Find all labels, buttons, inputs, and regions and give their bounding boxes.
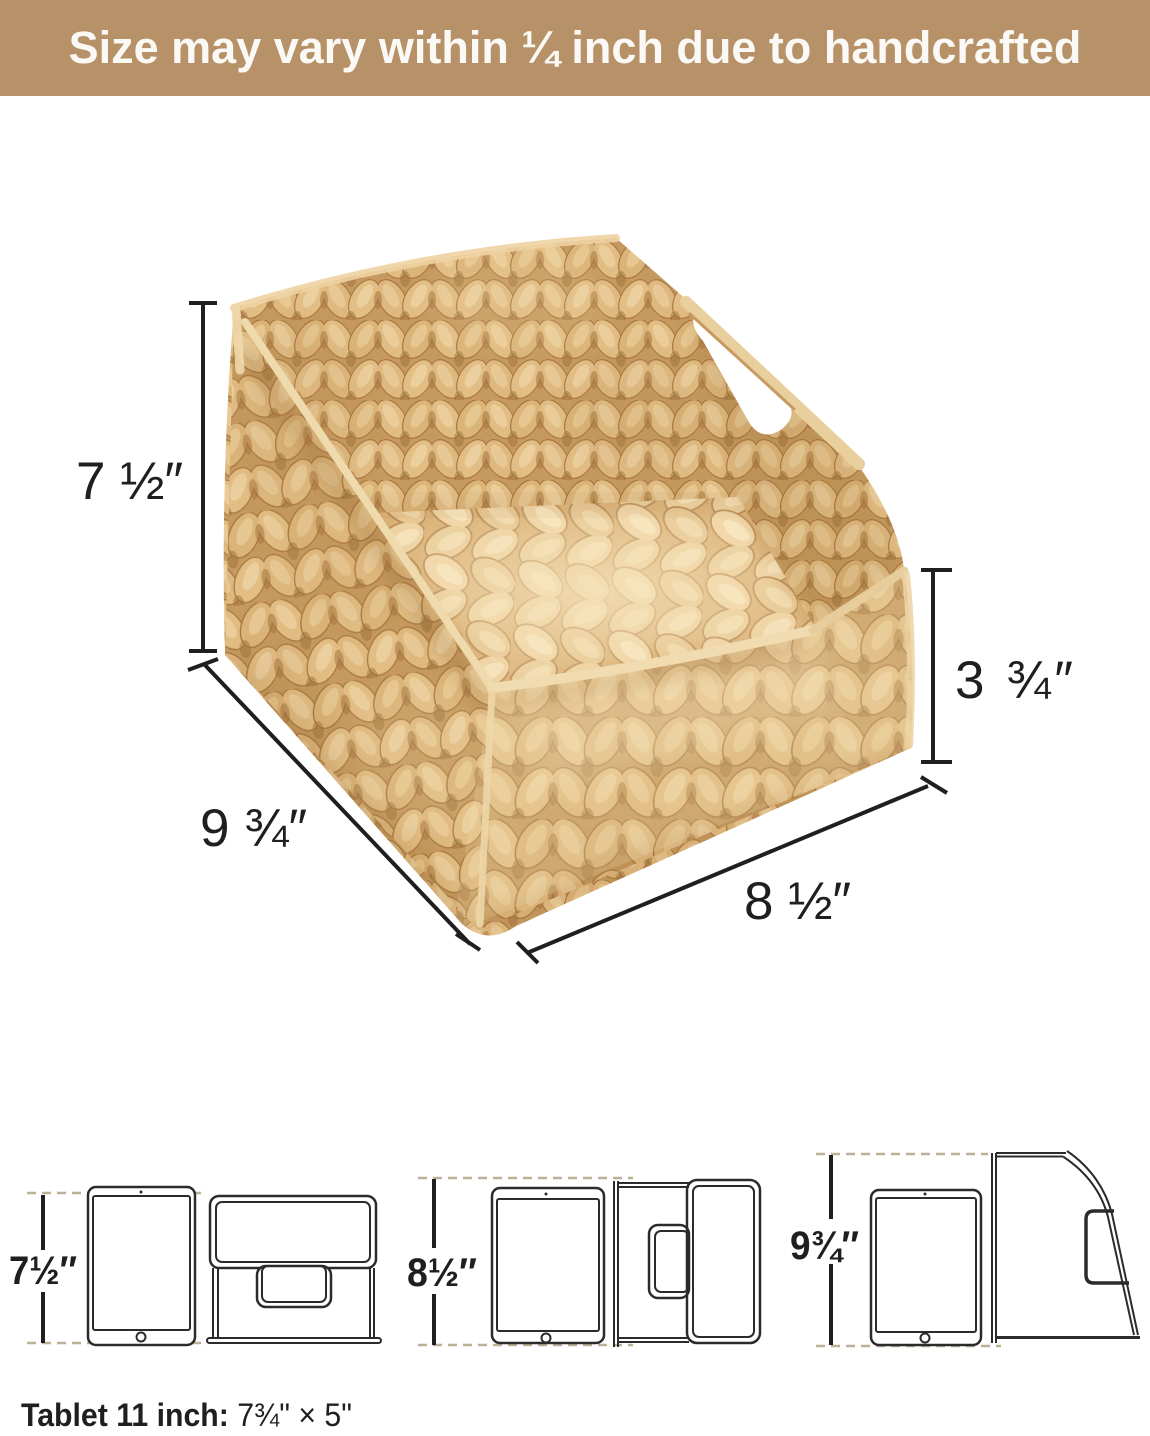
svg-text:7½″: 7½″ <box>9 1249 77 1293</box>
svg-text:Size may vary within ¼ inch du: Size may vary within ¼ inch due to handc… <box>69 22 1082 73</box>
svg-text:9 ¾″: 9 ¾″ <box>200 799 307 858</box>
svg-text:3 ¾″: 3 ¾″ <box>955 651 1073 710</box>
svg-text:9¾″: 9¾″ <box>790 1224 859 1268</box>
svg-text:Tablet 11 inch: 7¾" × 5": Tablet 11 inch: 7¾" × 5" <box>21 1397 352 1431</box>
svg-text:7 ½″: 7 ½″ <box>76 452 183 511</box>
svg-text:8 ½″: 8 ½″ <box>744 872 851 931</box>
svg-text:8½″: 8½″ <box>407 1251 477 1295</box>
